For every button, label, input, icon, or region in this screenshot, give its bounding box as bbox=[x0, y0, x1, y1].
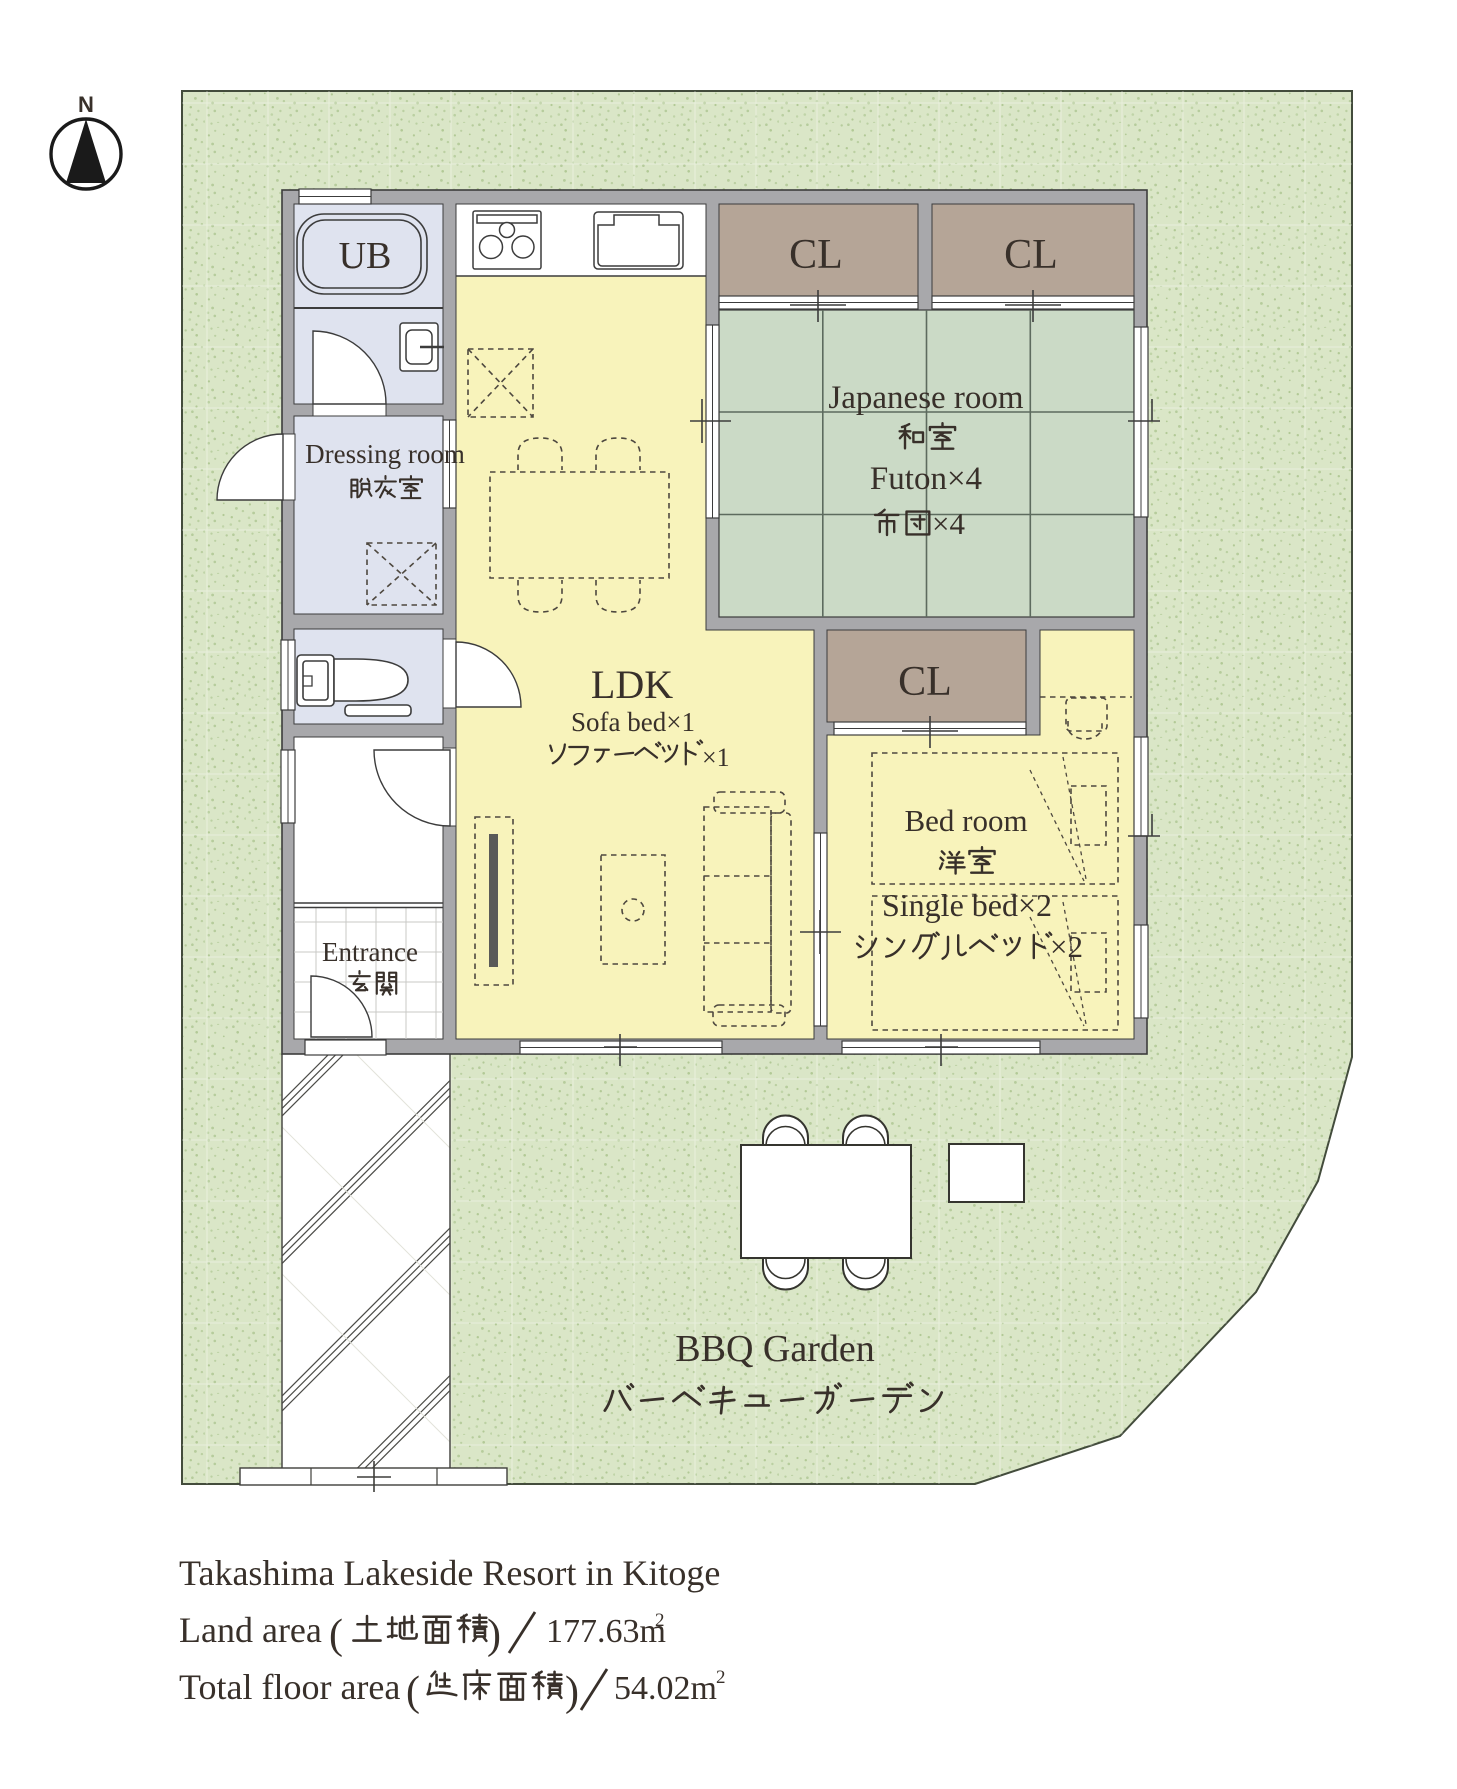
svg-text:(: ( bbox=[406, 1669, 420, 1715]
svg-text:): ) bbox=[487, 1612, 501, 1658]
svg-text:177.63m: 177.63m bbox=[546, 1613, 666, 1650]
svg-text:N: N bbox=[78, 92, 94, 117]
svg-text:CL: CL bbox=[1004, 232, 1058, 278]
svg-text:2: 2 bbox=[655, 1610, 665, 1631]
svg-text:×1: ×1 bbox=[702, 743, 730, 772]
svg-text:UB: UB bbox=[339, 235, 392, 277]
svg-text:2: 2 bbox=[716, 1667, 726, 1688]
svg-text:×4: ×4 bbox=[932, 506, 965, 541]
svg-text:54.02m: 54.02m bbox=[614, 1670, 717, 1707]
svg-text:Entrance: Entrance bbox=[322, 937, 418, 967]
svg-text:Takashima Lakeside Resort in K: Takashima Lakeside Resort in Kitoge bbox=[179, 1553, 720, 1593]
svg-text:CL: CL bbox=[789, 232, 843, 278]
svg-text:(: ( bbox=[329, 1612, 343, 1658]
svg-text:): ) bbox=[565, 1669, 579, 1715]
svg-text:Single bed×2: Single bed×2 bbox=[882, 887, 1052, 923]
svg-text:LDK: LDK bbox=[591, 662, 673, 707]
svg-text:×2: ×2 bbox=[1050, 929, 1083, 964]
svg-text:Sofa bed×1: Sofa bed×1 bbox=[571, 707, 695, 737]
svg-text:Bed room: Bed room bbox=[904, 803, 1027, 838]
svg-text:CL: CL bbox=[898, 659, 952, 705]
svg-text:Total floor area: Total floor area bbox=[179, 1667, 400, 1707]
svg-text:Land area: Land area bbox=[179, 1610, 322, 1650]
svg-text:Futon×4: Futon×4 bbox=[870, 461, 982, 497]
svg-text:Dressing room: Dressing room bbox=[305, 439, 465, 469]
svg-text:BBQ Garden: BBQ Garden bbox=[675, 1328, 874, 1370]
svg-text:Japanese room: Japanese room bbox=[828, 380, 1024, 416]
